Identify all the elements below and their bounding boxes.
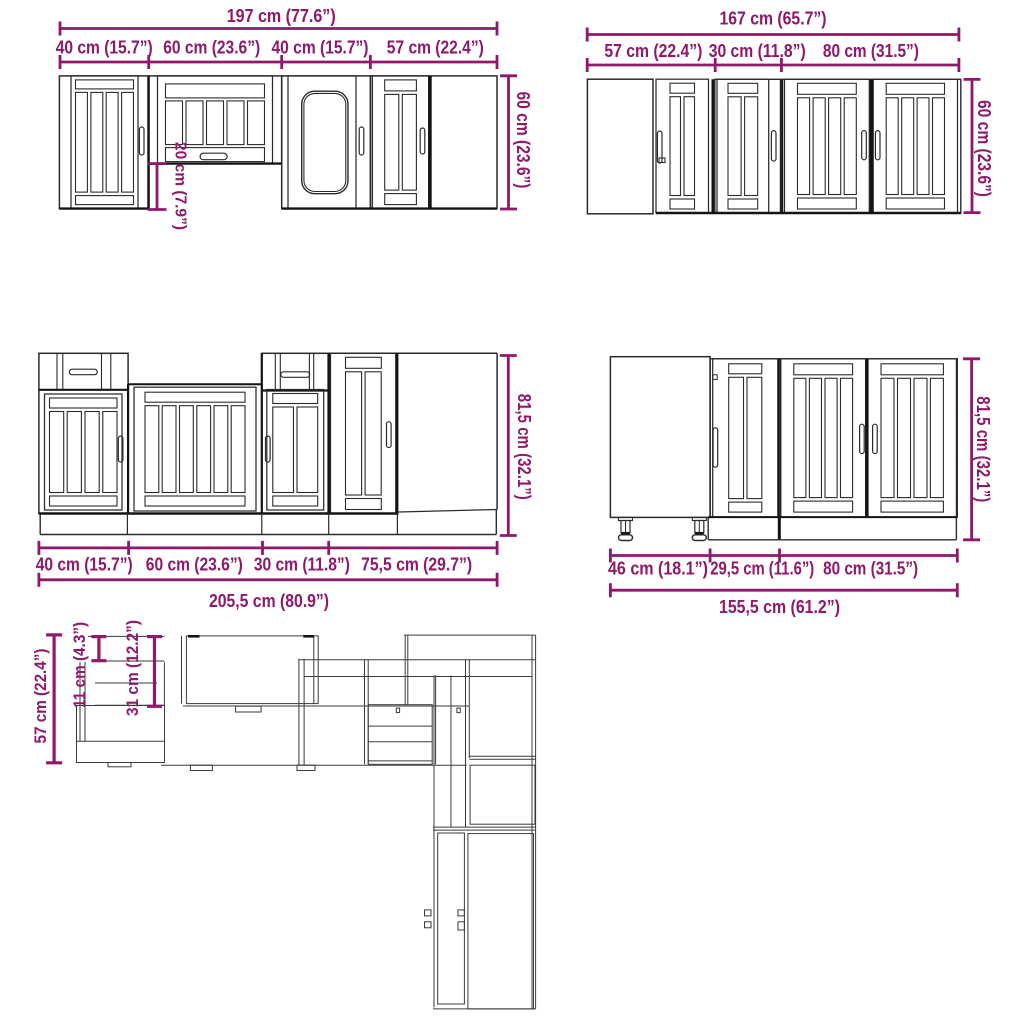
svg-text:60 cm (23.6”): 60 cm (23.6”) — [513, 92, 533, 189]
svg-text:80 cm (31.5”): 80 cm (31.5”) — [823, 559, 918, 579]
svg-text:75,5 cm (29.7”): 75,5 cm (29.7”) — [361, 555, 472, 575]
svg-text:205,5 cm (80.9”): 205,5 cm (80.9”) — [209, 591, 329, 611]
svg-text:80 cm (31.5”): 80 cm (31.5”) — [823, 41, 919, 61]
svg-text:60 cm (23.6”): 60 cm (23.6”) — [146, 555, 243, 575]
svg-text:40 cm (15.7”): 40 cm (15.7”) — [272, 38, 369, 58]
svg-text:40 cm (15.7”): 40 cm (15.7”) — [56, 38, 153, 58]
svg-text:57 cm (22.4”): 57 cm (22.4”) — [604, 41, 702, 61]
svg-text:29,5 cm (11.6”): 29,5 cm (11.6”) — [710, 559, 814, 579]
svg-text:60 cm (23.6”): 60 cm (23.6”) — [974, 100, 994, 197]
svg-text:40 cm (15.7”): 40 cm (15.7”) — [36, 555, 133, 575]
svg-text:167 cm (65.7”): 167 cm (65.7”) — [720, 9, 827, 29]
svg-text:11 cm (4.3”): 11 cm (4.3”) — [71, 622, 89, 708]
svg-text:155,5 cm (61.2”): 155,5 cm (61.2”) — [719, 597, 840, 617]
svg-text:31 cm (12.2”): 31 cm (12.2”) — [124, 620, 142, 716]
svg-text:46 cm (18.1”): 46 cm (18.1”) — [608, 559, 708, 579]
svg-text:57 cm (22.4”): 57 cm (22.4”) — [387, 38, 484, 58]
svg-text:60 cm (23.6”): 60 cm (23.6”) — [163, 38, 260, 58]
svg-text:81,5 cm (32.1”): 81,5 cm (32.1”) — [973, 396, 993, 502]
svg-text:30 cm (11.8”): 30 cm (11.8”) — [709, 41, 806, 61]
svg-text:20 cm (7.9”): 20 cm (7.9”) — [171, 142, 188, 230]
svg-text:30 cm (11.8”): 30 cm (11.8”) — [254, 555, 350, 575]
svg-text:81,5 cm (32.1”): 81,5 cm (32.1”) — [514, 394, 534, 500]
svg-text:57 cm (22.4”): 57 cm (22.4”) — [32, 649, 50, 744]
svg-text:197 cm (77.6”): 197 cm (77.6”) — [227, 6, 336, 26]
